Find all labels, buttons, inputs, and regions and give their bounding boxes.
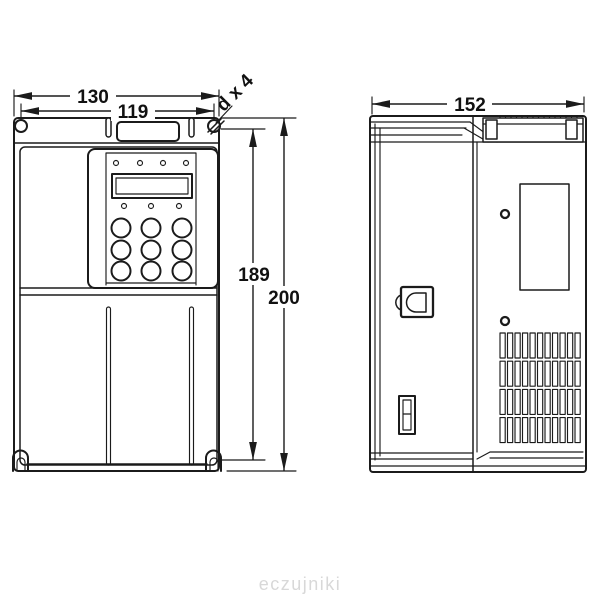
hole-note-label: d x 4 xyxy=(212,70,258,116)
mounting-clip-right xyxy=(566,120,577,139)
dim-189-label: 189 xyxy=(238,265,270,286)
dim-200-label: 200 xyxy=(268,288,300,309)
side-view xyxy=(370,116,586,472)
watermark-text: eczujniki xyxy=(259,574,342,594)
connector-slot xyxy=(399,396,415,434)
front-view xyxy=(13,118,224,471)
dim-119-label: 119 xyxy=(118,102,149,123)
front-top-recess xyxy=(117,122,179,141)
dim-152-label: 152 xyxy=(454,95,486,116)
dim-130-label: 130 xyxy=(77,87,109,108)
mounting-hole-top-left xyxy=(15,120,27,132)
ext-lines-189 xyxy=(221,129,265,460)
front-top-slot-right xyxy=(189,118,194,137)
mounting-clip-left xyxy=(486,120,497,139)
front-top-slot-left xyxy=(106,118,111,137)
dimension-drawing-canvas: 130 119 d x 4 189 200 152 eczujniki xyxy=(0,0,600,600)
